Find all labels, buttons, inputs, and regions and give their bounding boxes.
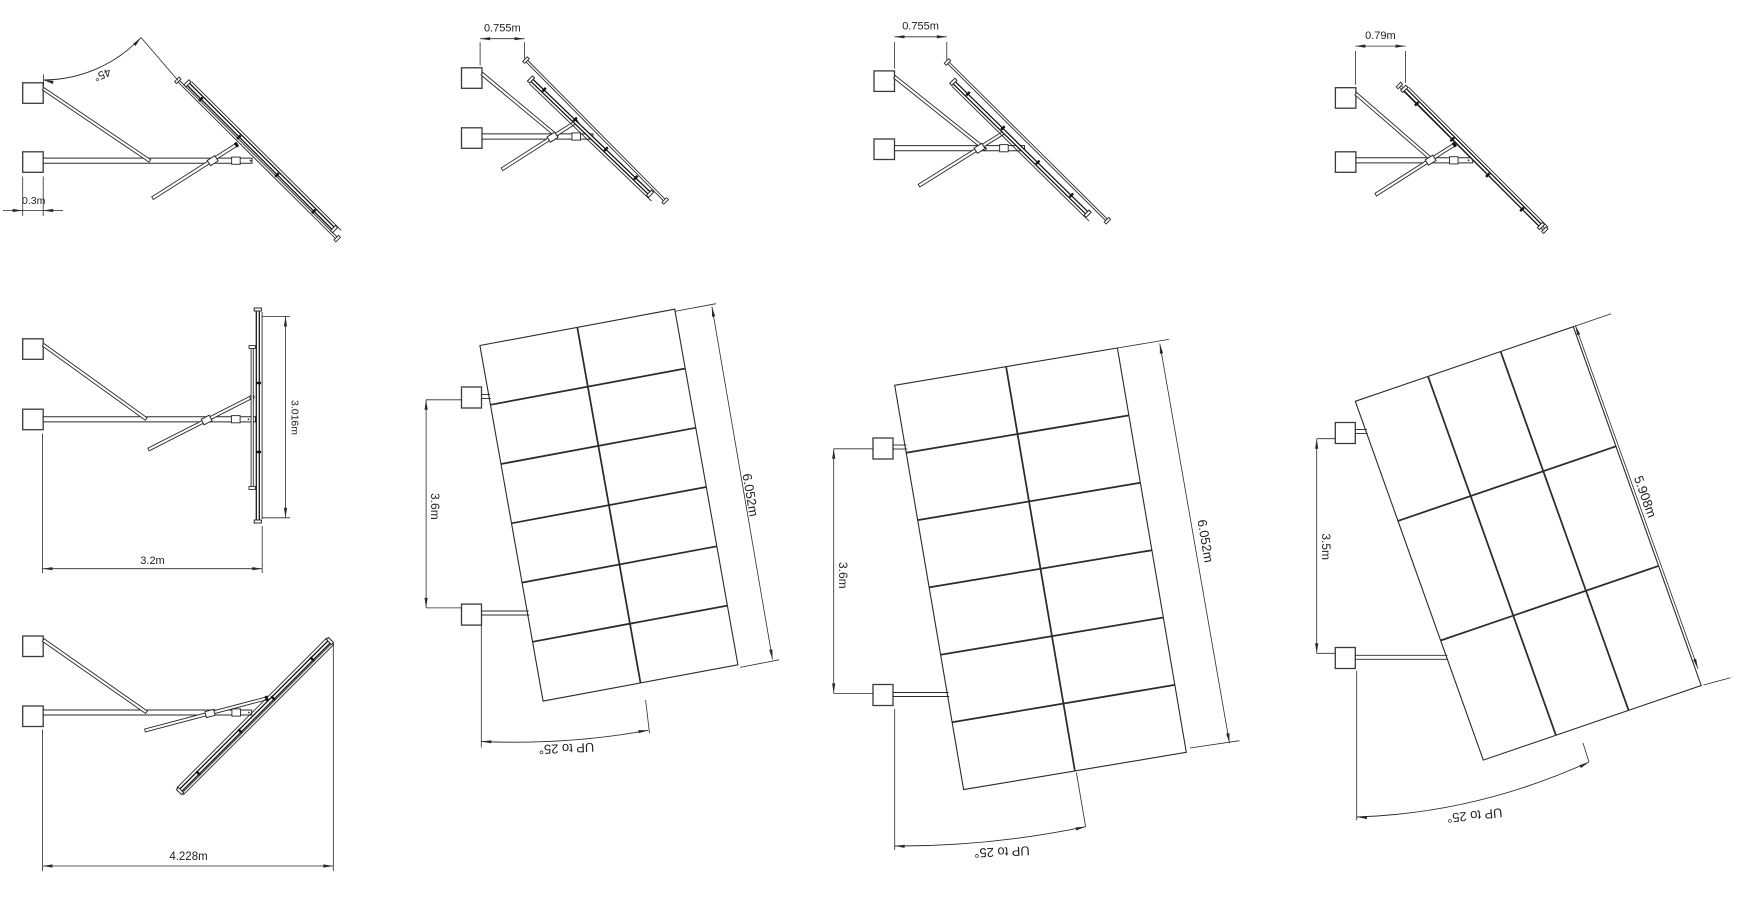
svg-text:UP to 25°: UP to 25° xyxy=(538,740,594,757)
svg-text:0.755m: 0.755m xyxy=(484,23,521,35)
svg-text:UP to 25°: UP to 25° xyxy=(974,843,1030,860)
svg-text:0.79m: 0.79m xyxy=(1365,30,1396,42)
svg-text:0.755m: 0.755m xyxy=(902,20,939,32)
svg-text:3.5m: 3.5m xyxy=(1319,533,1333,560)
svg-text:0.3m: 0.3m xyxy=(22,195,46,207)
svg-text:3.6m: 3.6m xyxy=(428,493,442,520)
svg-text:3.016m: 3.016m xyxy=(288,400,300,435)
svg-text:4.228m: 4.228m xyxy=(169,851,207,863)
svg-text:3.2m: 3.2m xyxy=(140,555,164,567)
svg-text:3.6m: 3.6m xyxy=(836,562,850,589)
